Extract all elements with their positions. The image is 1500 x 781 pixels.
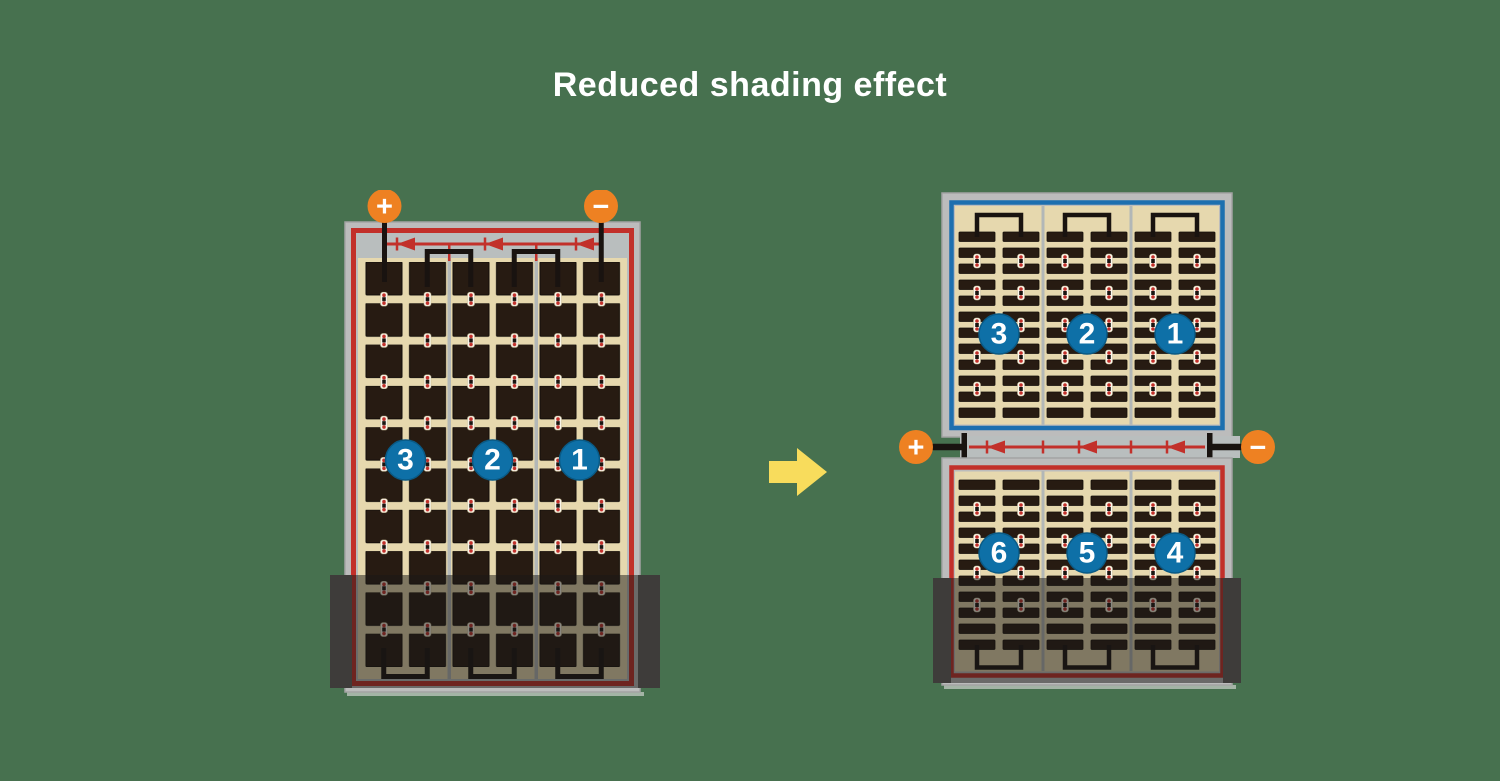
right-arrow-icon — [763, 440, 835, 504]
section-badge: 4 — [1155, 533, 1195, 573]
section-number: 1 — [1167, 318, 1184, 351]
shading-overlay — [951, 578, 1223, 683]
minus-label: − — [593, 191, 610, 223]
shading-overlay — [352, 575, 638, 688]
section-badge: 3 — [386, 440, 426, 480]
section-number: 3 — [397, 444, 414, 477]
junction-bar-left — [962, 433, 968, 461]
plus-label: + — [908, 432, 925, 464]
junction-bar-right — [1207, 433, 1213, 461]
shading-cap-right — [1223, 578, 1241, 683]
section-badge: 2 — [1067, 314, 1107, 354]
section-number: 2 — [1079, 318, 1096, 351]
plus-terminal: + — [368, 190, 402, 223]
section-badge: 1 — [560, 440, 600, 480]
page-title: Reduced shading effect — [0, 66, 1500, 105]
shading-cap-left — [933, 578, 951, 683]
section-badge: 1 — [1155, 314, 1195, 354]
section-number: 3 — [991, 318, 1008, 351]
left-panel: 3 2 1 + − — [325, 190, 665, 710]
section-badge: 5 — [1067, 533, 1107, 573]
right-panel: 3 2 1 6 — [895, 185, 1290, 710]
shading-cap-left — [330, 575, 352, 688]
plus-terminal: + — [899, 430, 933, 464]
section-number: 6 — [991, 537, 1008, 570]
shading-cap-right — [638, 575, 660, 688]
section-number: 2 — [484, 444, 501, 477]
minus-label: − — [1250, 432, 1267, 464]
minus-terminal: − — [1241, 430, 1275, 464]
section-badge: 2 — [473, 440, 513, 480]
diagram-canvas: Reduced shading effect — [0, 0, 1500, 781]
section-number: 5 — [1079, 537, 1096, 570]
plus-label: + — [376, 191, 393, 223]
section-badge: 6 — [979, 533, 1019, 573]
section-number: 1 — [571, 444, 588, 477]
minus-terminal: − — [584, 190, 618, 223]
section-number: 4 — [1167, 537, 1184, 570]
section-badge: 3 — [979, 314, 1019, 354]
